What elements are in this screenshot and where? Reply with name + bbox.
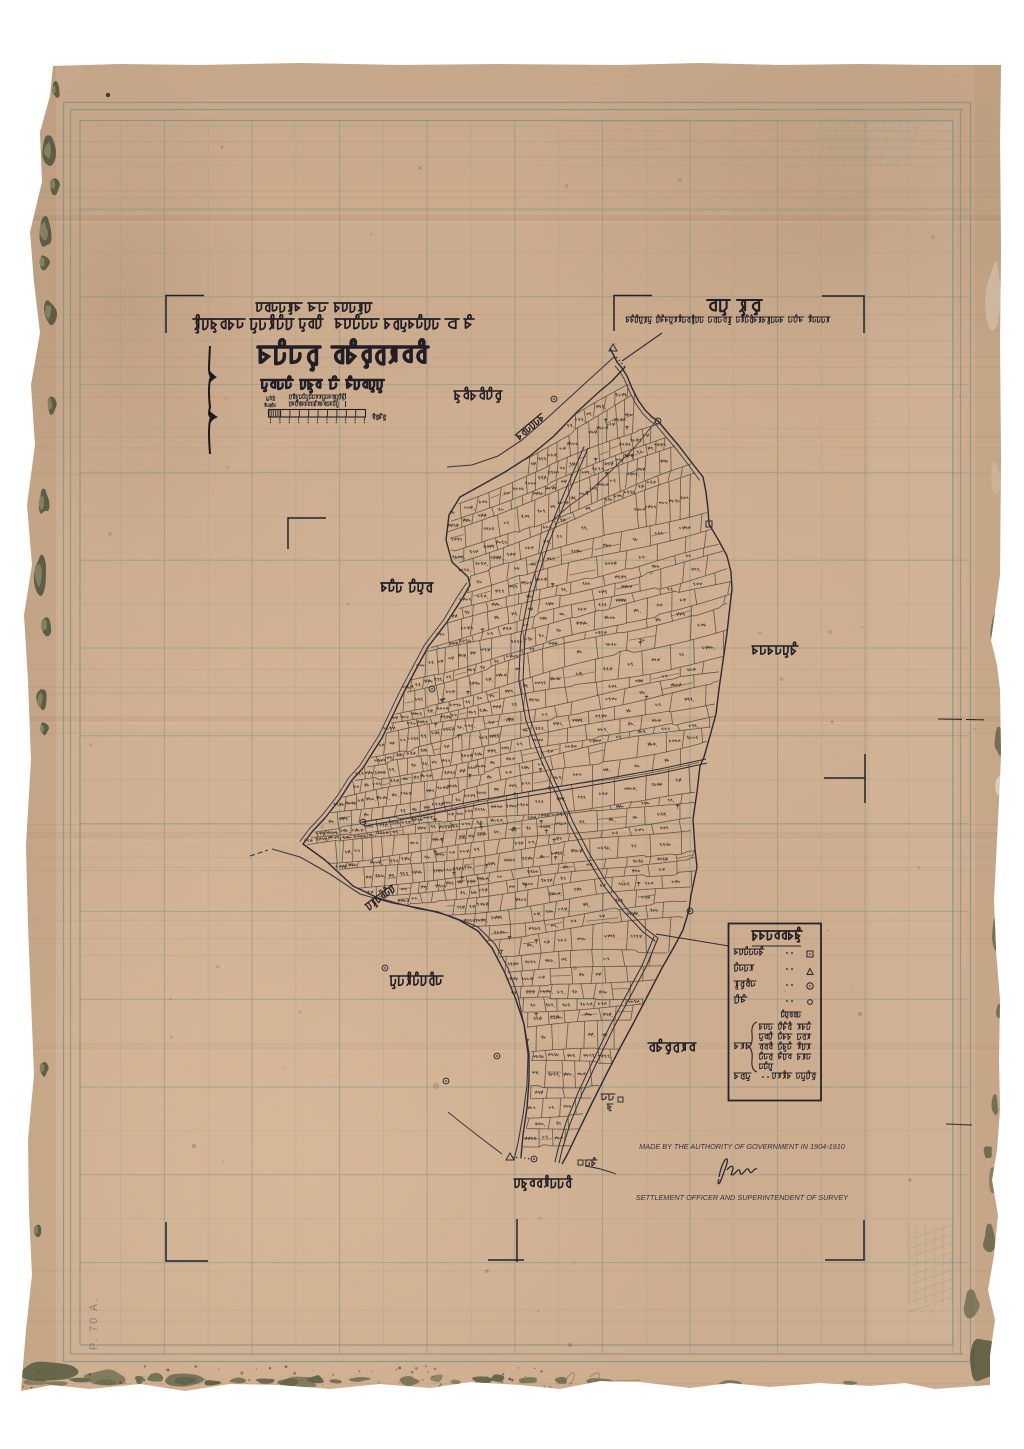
svg-text:SETTLEMENT OFFICER AND SUPERIN: SETTLEMENT OFFICER AND SUPERINTENDENT OF… — [636, 1193, 849, 1202]
svg-text:P. 70 A.: P. 70 A. — [88, 1297, 100, 1350]
svg-text:MADE BY THE AUTHORITY OF GOVER: MADE BY THE AUTHORITY OF GOVERNMENT IN 1… — [639, 1142, 845, 1151]
